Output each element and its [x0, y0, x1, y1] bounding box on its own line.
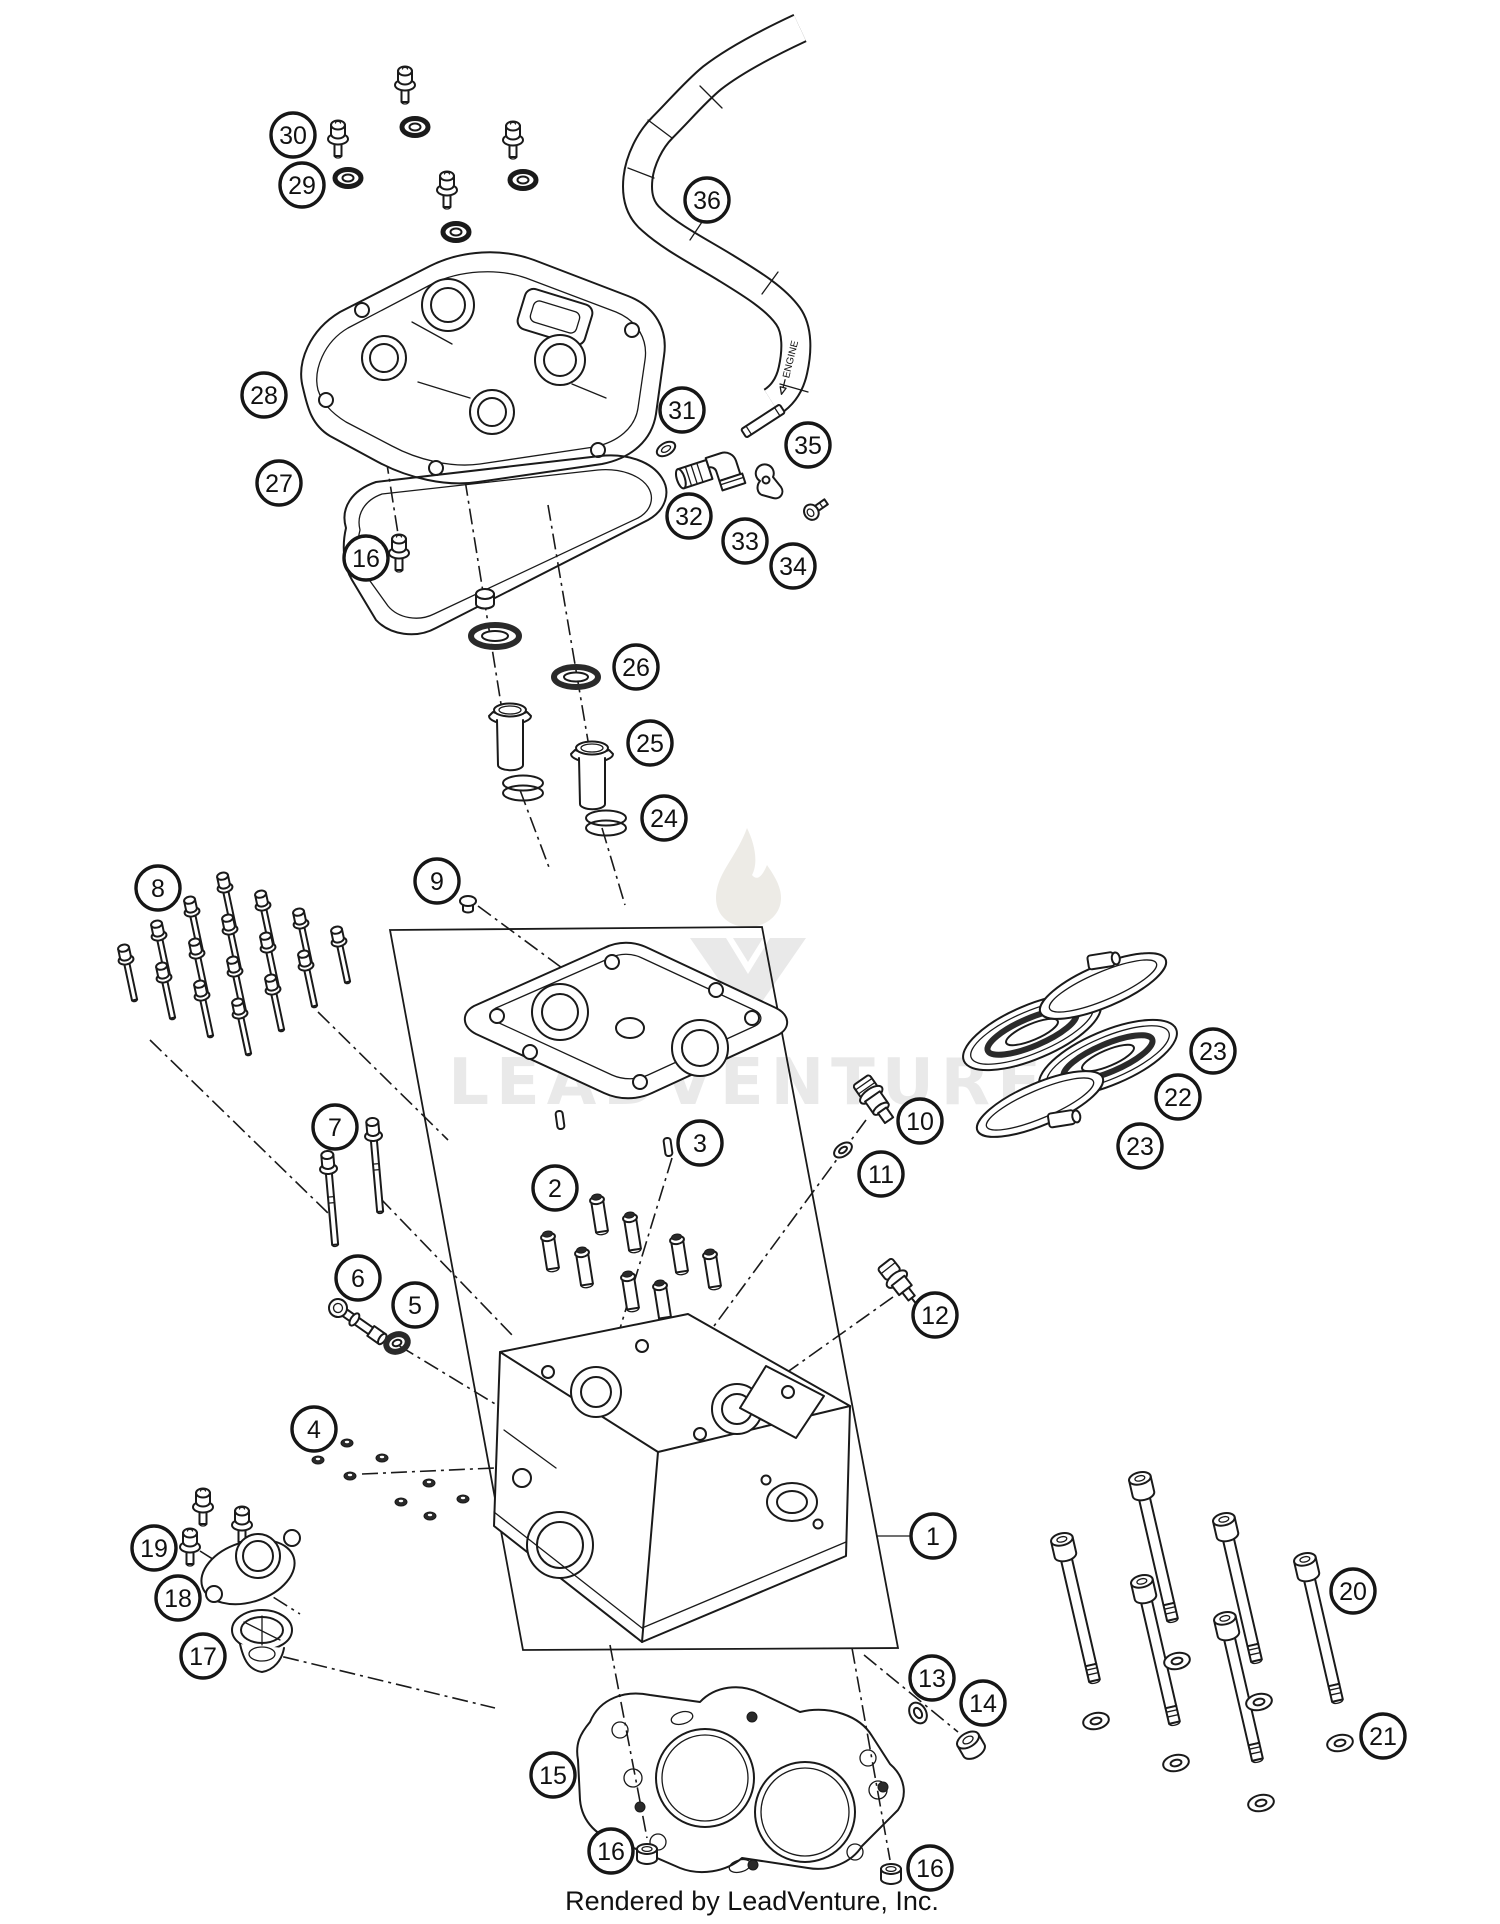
cover-seal — [443, 224, 469, 241]
callout-30-number: 30 — [279, 122, 307, 150]
callout-32[interactable]: 32 — [667, 494, 711, 538]
holder-screw — [801, 495, 831, 522]
head-nut — [423, 1479, 435, 1487]
thermostat — [232, 1610, 292, 1672]
head-nut — [395, 1498, 407, 1506]
callout-8-number: 8 — [151, 875, 165, 903]
callout-10[interactable]: 10 — [898, 1099, 942, 1143]
rubber-plug — [881, 1864, 901, 1884]
tube-oring-pair — [586, 811, 626, 836]
cover-seal — [402, 119, 428, 136]
callout-25[interactable]: 25 — [628, 721, 672, 765]
valve-guide — [669, 1233, 689, 1276]
cover-bolt — [503, 122, 523, 160]
callout-16-number: 16 — [352, 545, 380, 573]
cylinder-stud — [363, 1117, 388, 1214]
carrier-bolt — [191, 979, 218, 1039]
flame-logo — [716, 828, 781, 927]
valve-guide — [540, 1230, 560, 1273]
valve-guide — [622, 1211, 642, 1254]
callout-20[interactable]: 20 — [1331, 1569, 1375, 1613]
parts-diagram-page: LEADVENTURE ENGINE — [0, 0, 1500, 1924]
hose-clamp — [1027, 928, 1174, 1032]
callout-23[interactable]: 23 — [1118, 1124, 1162, 1168]
callout-16-number: 16 — [597, 1838, 625, 1866]
head-bolt-washer — [1326, 1732, 1355, 1753]
callout-33[interactable]: 33 — [723, 519, 767, 563]
spark-plug-tube — [489, 704, 531, 771]
callout-22[interactable]: 22 — [1156, 1075, 1200, 1119]
cover-plug — [476, 589, 494, 609]
callout-6[interactable]: 6 — [336, 1256, 380, 1300]
cylinder-head-bolt — [1050, 1531, 1106, 1686]
callout-9[interactable]: 9 — [415, 859, 459, 903]
callout-3-number: 3 — [693, 1130, 707, 1158]
callout-5-number: 5 — [408, 1292, 422, 1320]
carrier-bolt — [115, 943, 142, 1003]
carrier-bolt — [328, 925, 355, 985]
callout-9-number: 9 — [430, 868, 444, 896]
cylinder-head — [494, 1314, 850, 1642]
carrier-bolt — [153, 961, 180, 1021]
callout-4-number: 4 — [307, 1416, 321, 1444]
callout-8[interactable]: 8 — [136, 866, 180, 910]
head-nut — [424, 1512, 436, 1520]
head-bolt-washer — [1163, 1650, 1192, 1671]
shaft-seal — [384, 1331, 410, 1354]
cover-bolt — [437, 172, 457, 210]
hose-holder-clip — [756, 464, 783, 498]
callout-19[interactable]: 19 — [132, 1526, 176, 1570]
valve-guide — [574, 1246, 594, 1289]
callout-13-number: 13 — [918, 1665, 946, 1693]
head-bolt-washer — [1247, 1792, 1276, 1813]
callout-16[interactable]: 16 — [908, 1846, 952, 1890]
callout-36-number: 36 — [693, 187, 721, 215]
callout-24-number: 24 — [650, 805, 678, 833]
callout-26-number: 26 — [622, 654, 650, 682]
tube-seal — [554, 667, 598, 687]
sensor-washer — [831, 1139, 854, 1160]
callout-21[interactable]: 21 — [1361, 1714, 1405, 1758]
callout-29-number: 29 — [288, 172, 316, 200]
callout-30[interactable]: 30 — [271, 113, 315, 157]
callout-21-number: 21 — [1369, 1723, 1397, 1751]
callout-31[interactable]: 31 — [660, 388, 704, 432]
thermostat-bolt — [193, 1489, 213, 1527]
callout-7[interactable]: 7 — [313, 1105, 357, 1149]
callout-31-number: 31 — [668, 397, 696, 425]
callout-5[interactable]: 5 — [393, 1283, 437, 1327]
valve-guide — [589, 1193, 609, 1236]
head-bolt-washer — [1082, 1710, 1111, 1731]
callout-36[interactable]: 36 — [685, 178, 729, 222]
tube-seal — [471, 625, 519, 647]
thermostat-cover — [193, 1529, 303, 1616]
carrier-bolt — [229, 997, 256, 1057]
carrier-screw — [460, 896, 476, 913]
carrier-bolt — [262, 973, 289, 1033]
sealing-washer — [906, 1699, 931, 1726]
spark-plug-tube — [571, 742, 613, 810]
callout-28[interactable]: 28 — [242, 373, 286, 417]
footer-credit: Rendered by LeadVenture, Inc. — [565, 1886, 939, 1916]
dowel-pin — [663, 1138, 672, 1157]
leadventure-watermark: LEADVENTURE — [448, 828, 1048, 1120]
valve-guide — [702, 1248, 722, 1291]
callout-2-number: 2 — [548, 1175, 562, 1203]
callout-29[interactable]: 29 — [280, 163, 324, 207]
callout-13[interactable]: 13 — [910, 1656, 954, 1700]
callout-35-number: 35 — [794, 432, 822, 460]
callout-19-number: 19 — [140, 1535, 168, 1563]
head-bolt-washer — [1162, 1752, 1191, 1773]
callout-16[interactable]: 16 — [589, 1829, 633, 1873]
callout-18[interactable]: 18 — [156, 1576, 200, 1620]
callout-35[interactable]: 35 — [786, 423, 830, 467]
head-nut — [341, 1439, 353, 1447]
callout-16[interactable]: 16 — [344, 536, 388, 580]
callout-11[interactable]: 11 — [859, 1152, 903, 1196]
cylinder-stud — [318, 1150, 343, 1247]
cover-seal — [510, 172, 536, 189]
cover-bolt-layer — [328, 67, 523, 210]
callout-4[interactable]: 4 — [292, 1407, 336, 1451]
head-nut — [376, 1454, 388, 1462]
callout-18-number: 18 — [164, 1585, 192, 1613]
callout-16-number: 16 — [916, 1855, 944, 1883]
callout-7-number: 7 — [328, 1114, 342, 1142]
callout-1[interactable]: 1 — [911, 1514, 955, 1558]
cylinder-head-bolt — [1212, 1511, 1268, 1666]
washer-layer — [1082, 1650, 1355, 1813]
carrier-bolt — [295, 949, 322, 1009]
callout-1-number: 1 — [926, 1523, 940, 1551]
callout-2[interactable]: 2 — [533, 1166, 577, 1210]
head-nut — [457, 1495, 469, 1503]
callout-20-number: 20 — [1339, 1578, 1367, 1606]
valve-guide-layer — [540, 1193, 722, 1322]
callout-14[interactable]: 14 — [961, 1681, 1005, 1725]
oil-plug — [954, 1728, 988, 1763]
callout-26[interactable]: 26 — [614, 645, 658, 689]
callout-25-number: 25 — [636, 730, 664, 758]
callout-17-number: 17 — [189, 1643, 217, 1671]
callout-23-number: 23 — [1199, 1038, 1227, 1066]
cover-bolt — [328, 121, 348, 159]
breather-pin — [741, 404, 785, 437]
callout-15-number: 15 — [539, 1762, 567, 1790]
callout-33-number: 33 — [731, 528, 759, 556]
callout-34-number: 34 — [779, 553, 807, 581]
cover-bolt — [395, 67, 415, 105]
valve-guide — [620, 1270, 640, 1313]
callout-10-number: 10 — [906, 1108, 934, 1136]
callout-6-number: 6 — [351, 1265, 365, 1293]
thermostat-bolt — [180, 1529, 200, 1567]
head-nut-layer — [312, 1439, 469, 1520]
callout-12-number: 12 — [921, 1302, 949, 1330]
callout-23-number: 23 — [1126, 1133, 1154, 1161]
exploded-parts-diagram: LEADVENTURE ENGINE — [0, 0, 1500, 1924]
callout-15[interactable]: 15 — [531, 1753, 575, 1797]
valve-cover — [301, 252, 665, 483]
callout-11-number: 11 — [868, 1161, 894, 1189]
callout-12[interactable]: 12 — [913, 1293, 957, 1337]
cylinder-head-bolt — [1130, 1573, 1186, 1728]
callout-17[interactable]: 17 — [181, 1634, 225, 1678]
banjo-bolt — [325, 1295, 389, 1348]
callout-22-number: 22 — [1164, 1084, 1192, 1112]
callout-34[interactable]: 34 — [771, 544, 815, 588]
cylinder-head-bolt — [1213, 1610, 1269, 1765]
cover-screw-16 — [389, 535, 409, 573]
rubber-plug — [637, 1844, 657, 1864]
dowel-pin — [555, 1111, 564, 1130]
cover-seal — [335, 170, 361, 187]
callout-3[interactable]: 3 — [678, 1121, 722, 1165]
head-nut — [312, 1456, 324, 1464]
callout-23[interactable]: 23 — [1191, 1029, 1235, 1073]
callout-32-number: 32 — [675, 503, 703, 531]
callout-27[interactable]: 27 — [257, 461, 301, 505]
callout-27-number: 27 — [265, 470, 293, 498]
callout-24[interactable]: 24 — [642, 796, 686, 840]
valve-guide — [652, 1279, 672, 1322]
breather-oring — [654, 439, 677, 459]
head-nut — [344, 1472, 356, 1480]
callout-14-number: 14 — [969, 1690, 997, 1718]
callout-28-number: 28 — [250, 382, 278, 410]
